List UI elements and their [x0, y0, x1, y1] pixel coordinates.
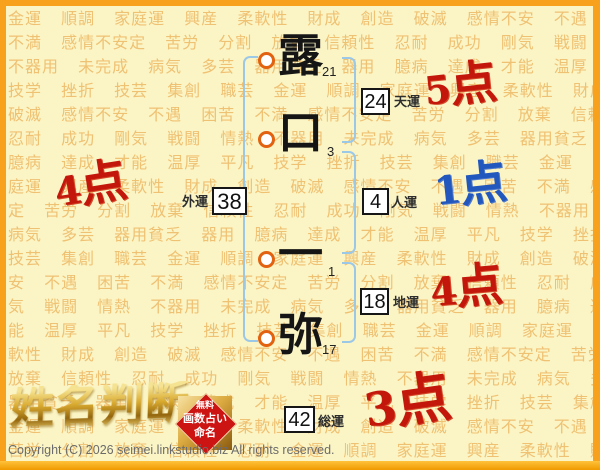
seimei-handan-result-page: 金運 順調 家庭運 興産 柔軟性 財成 創造 破滅 感情不安 不遇 困苦不満 感…: [0, 0, 600, 470]
stroke-count: 21: [322, 64, 336, 79]
name-character: 口: [278, 110, 323, 155]
stroke-count: 3: [327, 144, 334, 159]
name-character: 露: [278, 33, 323, 78]
tenun-label: 天運: [394, 96, 420, 109]
character-marker-circle: [258, 131, 275, 148]
tenun-bracket: [342, 57, 356, 143]
stroke-count: 1: [328, 264, 335, 279]
frame-left-border: [0, 0, 6, 470]
copyright-text: Copyright (C) 2026 seimei.linkstudio.biz…: [8, 443, 335, 457]
character-marker-circle: [258, 330, 275, 347]
character-marker-circle: [258, 251, 275, 268]
frame-bottom-border: [0, 461, 600, 470]
souun-score: 3点: [361, 368, 452, 435]
chiun-bracket: [342, 262, 356, 343]
chiun-score: 4点: [428, 261, 502, 314]
jinun-label: 人運: [391, 197, 417, 210]
badge-line-1: 無料: [178, 401, 232, 412]
frame-top-border: [0, 0, 600, 6]
wallpaper-row: 技学 挫折 技芸 集創 職芸 金運 順調 家庭運 興産 柔軟性 財成 創造: [8, 79, 600, 103]
seimei-handan-logo[interactable]: 姓名判断: [9, 381, 190, 431]
frame-right-border: [593, 0, 600, 470]
badge-text: 無料 画数占い 命名: [178, 401, 232, 440]
badge-line-2: 画数占い: [178, 412, 232, 426]
chiun-label: 地運: [393, 297, 419, 310]
free-kakusu-uranai-badge[interactable]: 無料 画数占い 命名: [178, 396, 232, 450]
souun-value-box: 42: [284, 406, 315, 433]
jinun-score: 1点: [432, 158, 506, 212]
chiun-value-box: 18: [360, 288, 389, 315]
tenun-score: 5点: [422, 58, 496, 112]
badge-line-3: 命名: [178, 426, 232, 440]
name-character: 弥: [278, 312, 323, 357]
gaiun-label: 外運: [182, 196, 208, 209]
jinun-value-box: 4: [362, 188, 389, 215]
character-marker-circle: [258, 52, 275, 69]
jinun-bracket: [342, 151, 356, 254]
name-character: 一: [278, 231, 323, 276]
gaiun-value-box: 38: [212, 187, 247, 215]
tenun-value-box: 24: [361, 88, 390, 115]
stroke-count: 17: [322, 342, 336, 357]
souun-label: 総運: [318, 416, 344, 429]
wallpaper-row: 金運 順調 家庭運 興産 柔軟性 財成 創造 破滅 感情不安 不遇 困苦: [8, 7, 600, 31]
gaiun-score: 4点: [51, 157, 127, 214]
